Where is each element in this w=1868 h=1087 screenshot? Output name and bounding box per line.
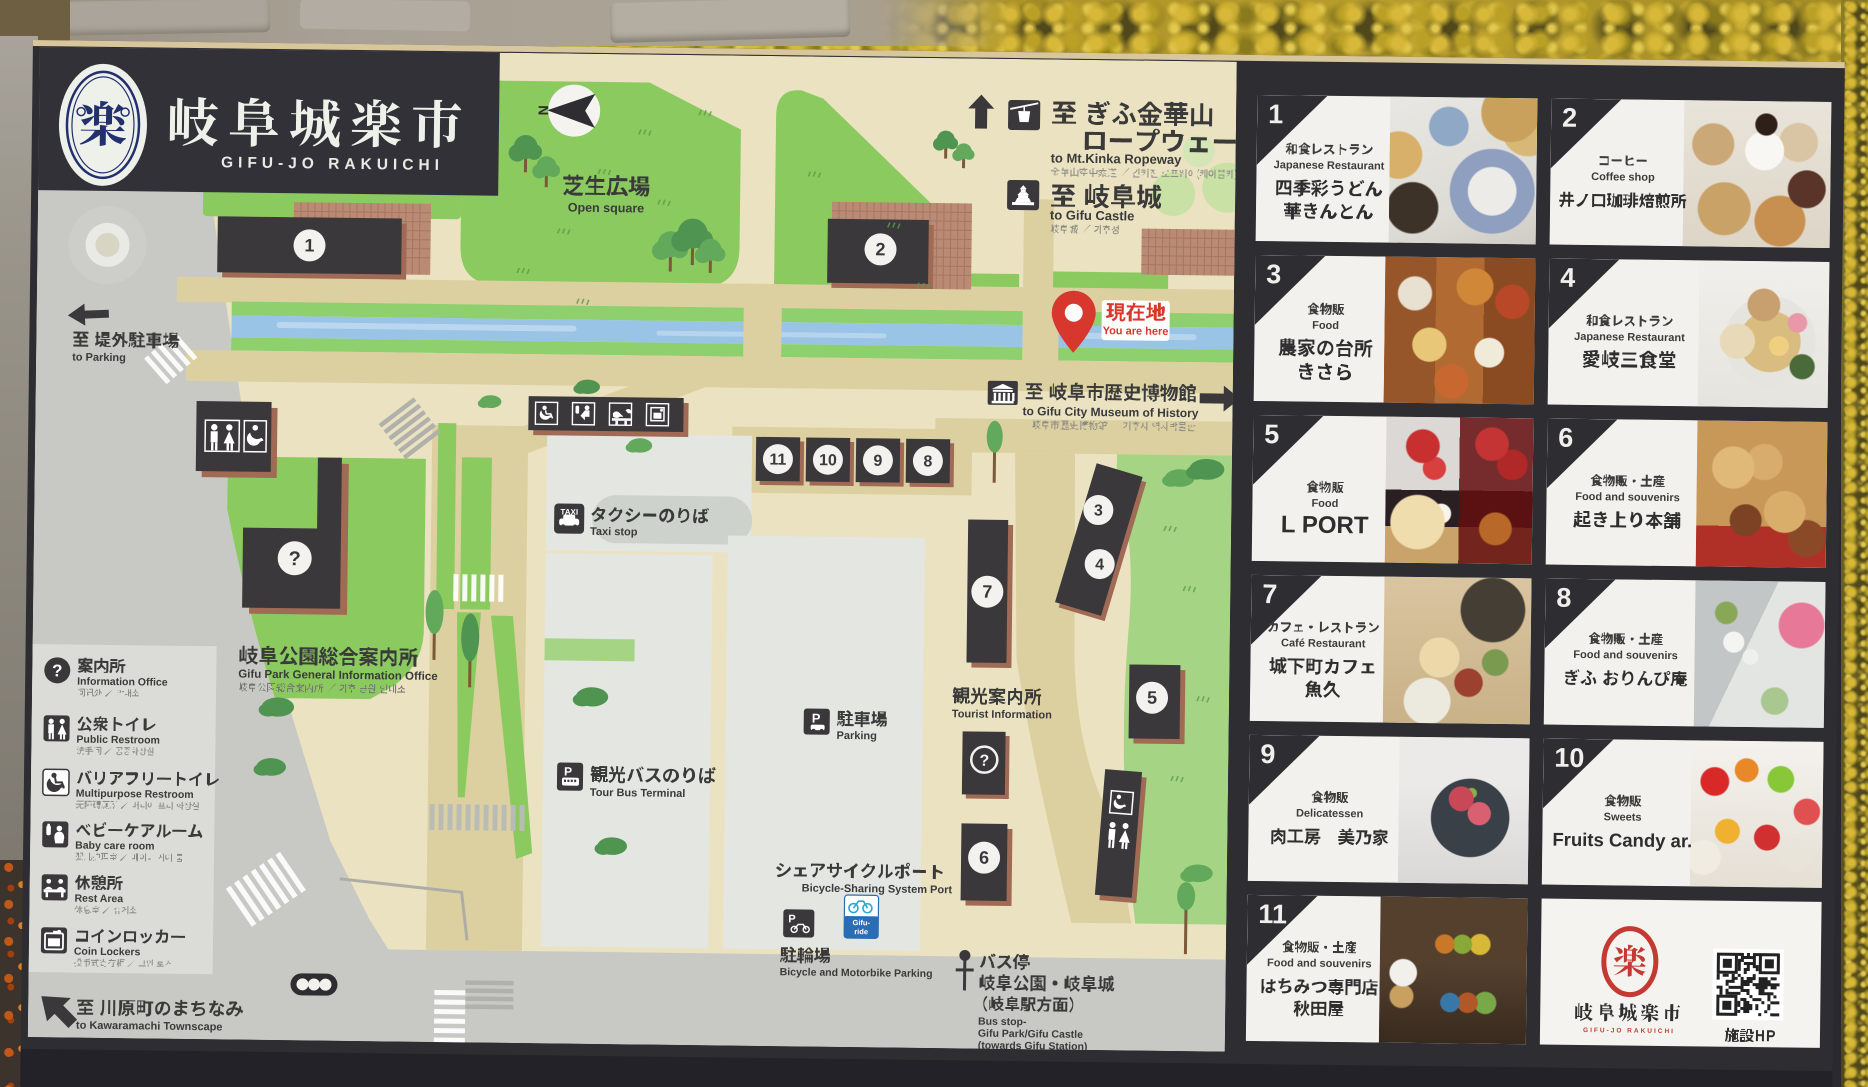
svg-text:5: 5: [1147, 688, 1157, 708]
svg-text:Bus stop-: Bus stop-: [978, 1016, 1027, 1029]
svg-text:P: P: [812, 711, 821, 726]
svg-text:GIFU-JO RAKUICHI: GIFU-JO RAKUICHI: [1583, 1027, 1675, 1035]
svg-text:(towards Gifu Station): (towards Gifu Station): [978, 1040, 1088, 1052]
svg-text:Bicycle-Sharing System Port: Bicycle-Sharing System Port: [802, 882, 953, 896]
svg-text:to Mt.Kinka Ropeway: to Mt.Kinka Ropeway: [1051, 150, 1183, 167]
svg-text:10: 10: [819, 452, 837, 469]
svg-text:Sweets: Sweets: [1604, 811, 1642, 823]
svg-text:Multipurpose Restroom: Multipurpose Restroom: [76, 788, 194, 801]
svg-text:Café Restaurant: Café Restaurant: [1281, 637, 1366, 650]
svg-text:Parking: Parking: [836, 730, 877, 742]
svg-text:4: 4: [1095, 557, 1104, 574]
svg-text:Rest Area: Rest Area: [74, 893, 123, 906]
svg-text:Gifu Park General Information: Gifu Park General Information Office: [238, 669, 438, 683]
svg-text:L PORT: L PORT: [1281, 511, 1369, 539]
svg-text:GIFU-JO RAKUICHI: GIFU-JO RAKUICHI: [221, 154, 444, 174]
svg-text:Baby care room: Baby care room: [75, 840, 155, 853]
svg-text:Coffee shop: Coffee shop: [1591, 171, 1655, 184]
svg-text:P: P: [564, 765, 572, 779]
svg-text:3: 3: [1094, 502, 1103, 519]
svg-text:to Kawaramachi Townscape: to Kawaramachi Townscape: [76, 1020, 223, 1034]
svg-text:Food and souvenirs: Food and souvenirs: [1575, 491, 1680, 504]
svg-text:Japanese Restaurant: Japanese Restaurant: [1574, 331, 1685, 344]
svg-text:?: ?: [288, 548, 300, 570]
svg-text:Gifu-: Gifu-: [852, 918, 870, 927]
svg-text:7: 7: [982, 582, 992, 602]
svg-text:Fruits Candy ar.: Fruits Candy ar.: [1552, 829, 1692, 852]
svg-text:Taxi stop: Taxi stop: [590, 526, 638, 539]
svg-text:to Gifu City Museum of History: to Gifu City Museum of History: [1022, 404, 1198, 420]
svg-text:Food: Food: [1312, 320, 1339, 332]
svg-text:Information Office: Information Office: [77, 676, 168, 689]
svg-text:ride: ride: [854, 927, 868, 936]
svg-text:Food and souvenirs: Food and souvenirs: [1573, 649, 1678, 662]
svg-text:Tour Bus Terminal: Tour Bus Terminal: [590, 787, 686, 800]
svg-text:Food and souvenirs: Food and souvenirs: [1267, 957, 1372, 970]
svg-text:N: N: [535, 105, 551, 115]
svg-text:You are here: You are here: [1103, 325, 1169, 338]
svg-text:Delicatessen: Delicatessen: [1296, 807, 1364, 820]
svg-text:Coin Lockers: Coin Lockers: [74, 946, 141, 959]
svg-text:2: 2: [875, 239, 885, 259]
svg-text:?: ?: [52, 661, 63, 680]
svg-text:9: 9: [873, 453, 882, 470]
svg-text:11: 11: [769, 452, 786, 469]
svg-text:1: 1: [304, 235, 314, 255]
svg-text:Japanese Restaurant: Japanese Restaurant: [1274, 159, 1385, 172]
svg-text:?: ?: [979, 753, 989, 770]
svg-text:8: 8: [923, 453, 932, 470]
svg-text:Tourist Information: Tourist Information: [952, 708, 1052, 721]
svg-text:Open square: Open square: [568, 201, 645, 216]
svg-text:Public Restroom: Public Restroom: [76, 734, 160, 747]
svg-text:to Parking: to Parking: [72, 352, 126, 365]
svg-text:Food: Food: [1311, 498, 1338, 510]
svg-text:to Gifu Castle: to Gifu Castle: [1050, 207, 1135, 223]
svg-text:6: 6: [979, 848, 989, 868]
svg-text:Bicycle and Motorbike Parking: Bicycle and Motorbike Parking: [780, 966, 933, 980]
svg-text:P: P: [788, 913, 795, 925]
